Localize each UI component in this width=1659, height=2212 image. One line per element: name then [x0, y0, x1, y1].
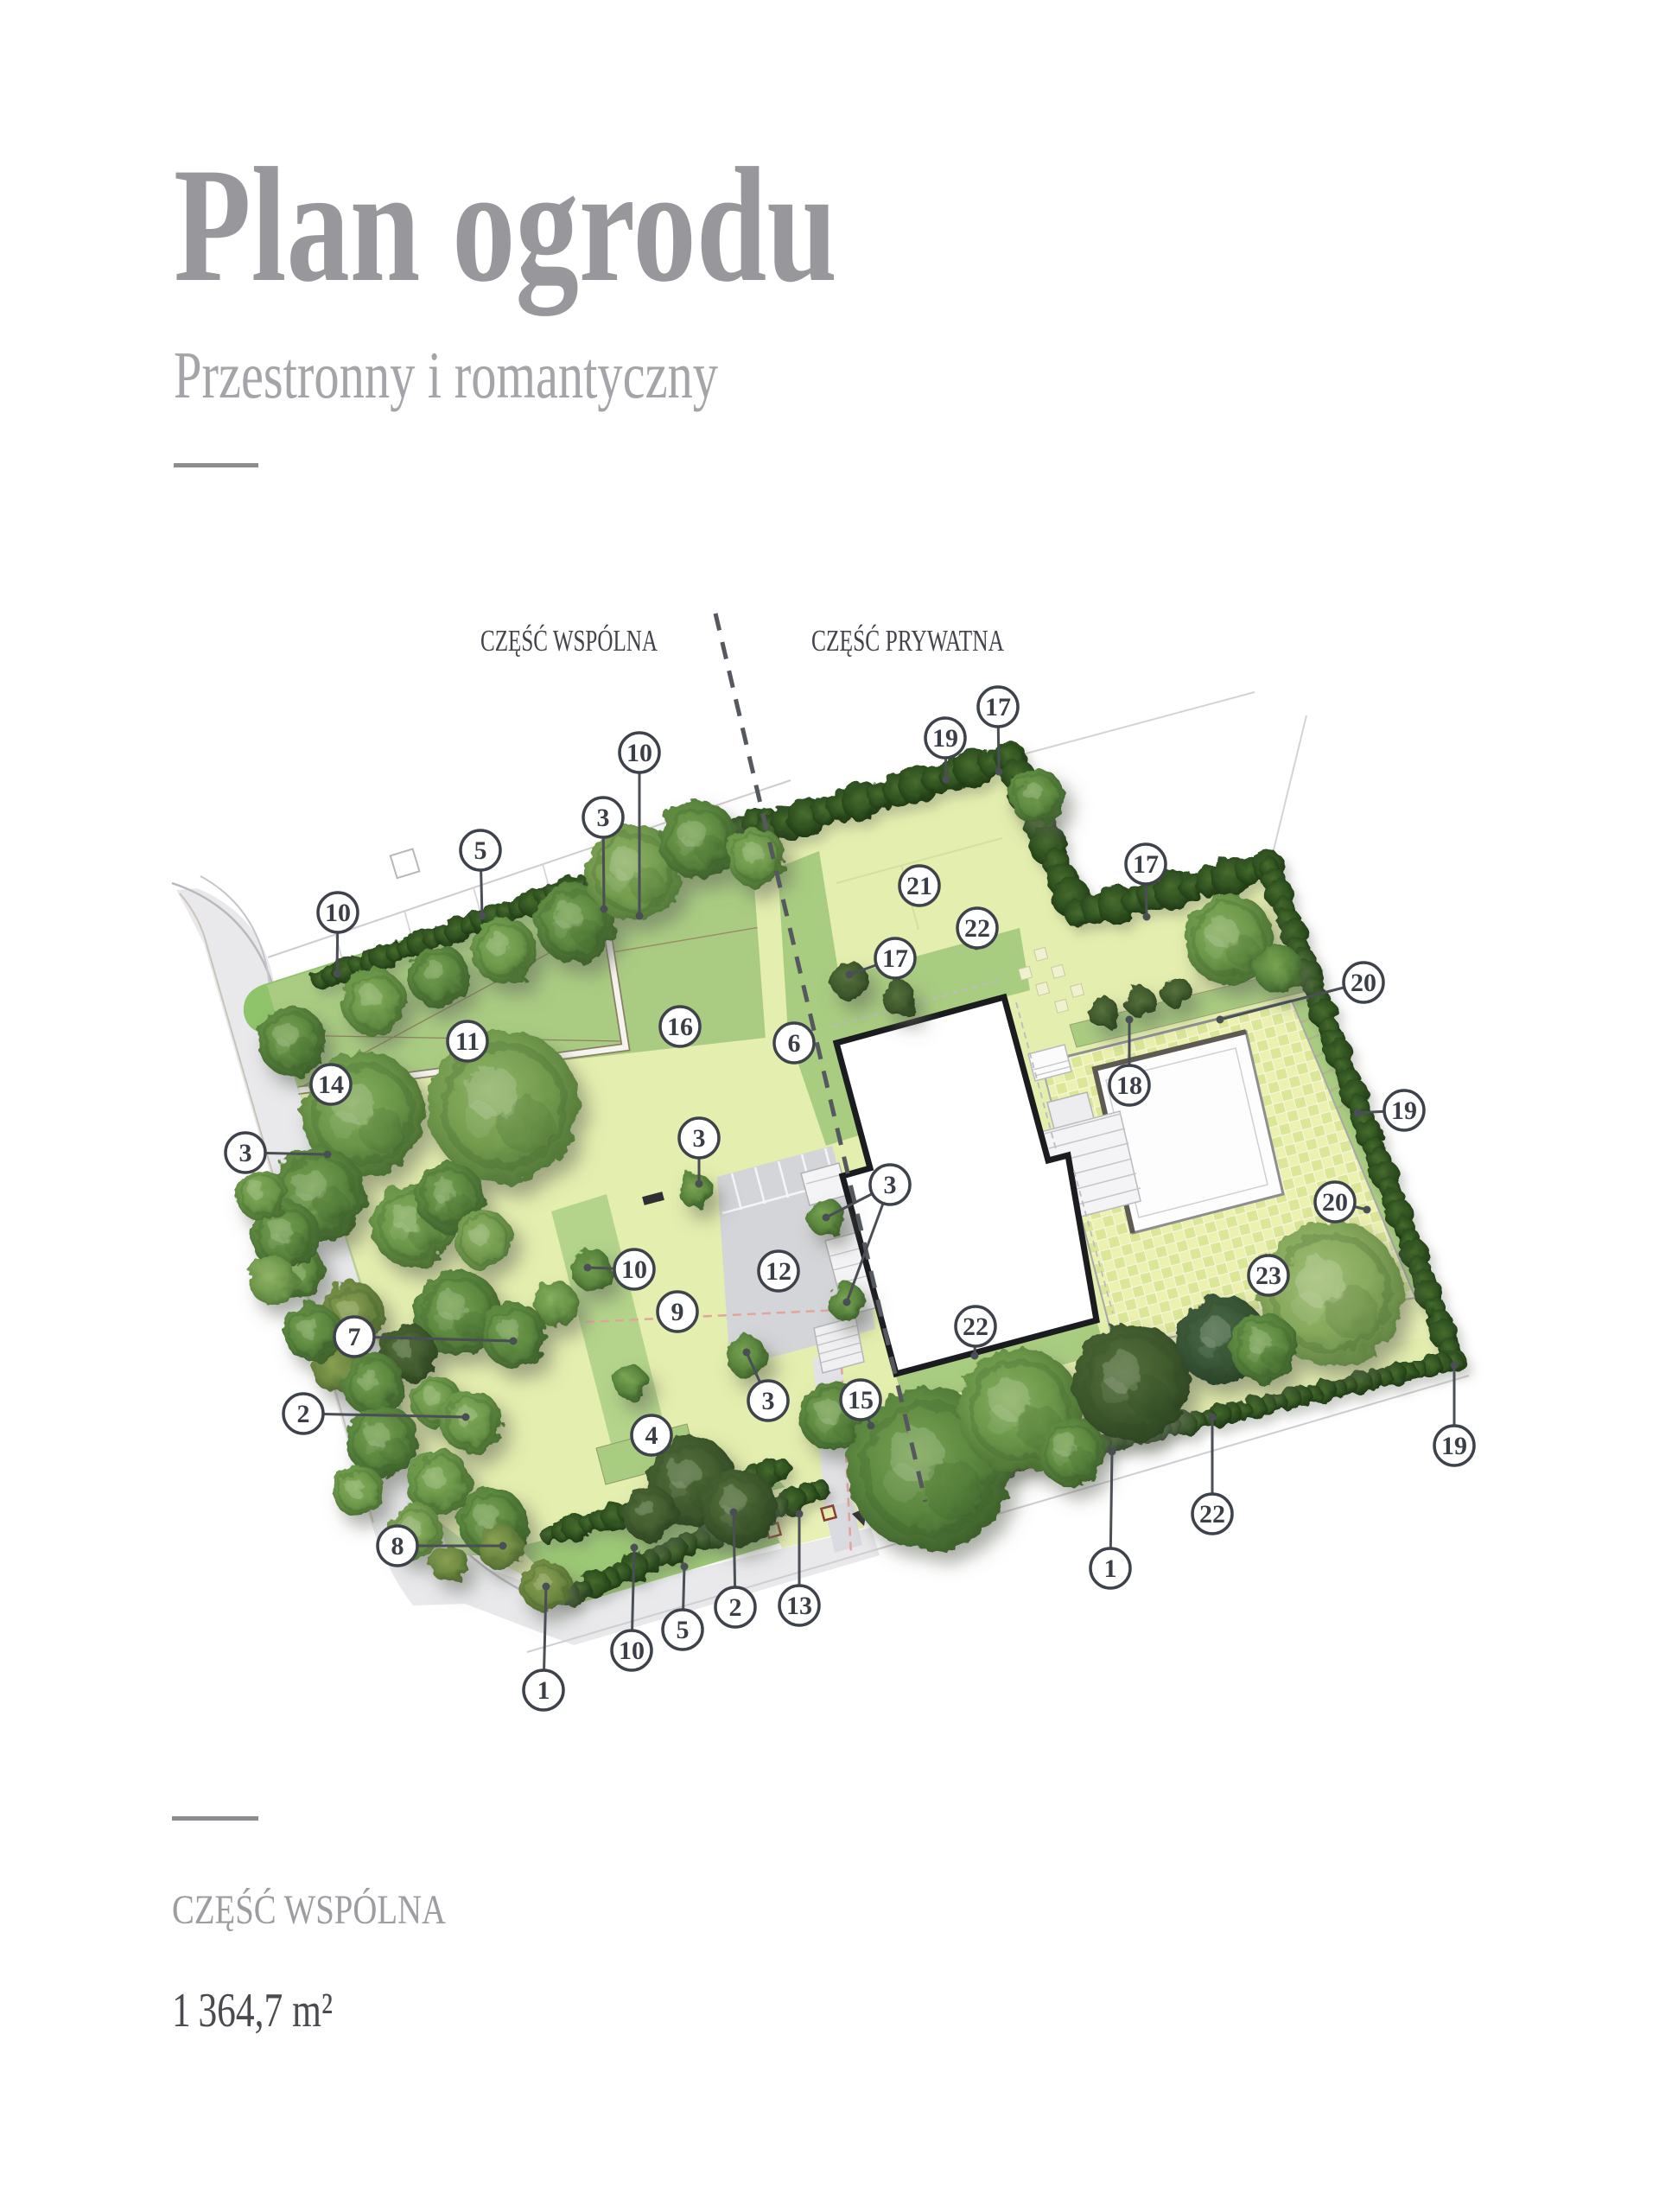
svg-text:1 364,7 m²: 1 364,7 m²	[172, 1984, 333, 2037]
svg-text:18: 18	[1116, 1071, 1142, 1100]
svg-text:15: 15	[848, 1386, 874, 1414]
svg-text:20: 20	[1351, 969, 1376, 997]
svg-text:10: 10	[325, 899, 351, 927]
svg-text:14: 14	[318, 1071, 344, 1099]
svg-text:CZĘŚĆ WSPÓLNA: CZĘŚĆ WSPÓLNA	[172, 1886, 446, 1933]
svg-text:3: 3	[762, 1387, 775, 1415]
svg-text:3: 3	[597, 804, 610, 832]
svg-text:1: 1	[537, 1676, 550, 1705]
svg-text:22: 22	[963, 1313, 988, 1341]
svg-text:19: 19	[1391, 1096, 1417, 1125]
svg-text:21: 21	[906, 872, 932, 900]
svg-text:6: 6	[788, 1029, 801, 1058]
svg-text:2: 2	[297, 1400, 310, 1428]
svg-text:13: 13	[786, 1592, 812, 1620]
svg-text:1: 1	[1104, 1554, 1117, 1583]
svg-text:10: 10	[621, 1255, 647, 1284]
svg-text:16: 16	[667, 1013, 693, 1041]
svg-text:5: 5	[677, 1616, 690, 1644]
svg-text:4: 4	[645, 1421, 658, 1450]
svg-text:CZĘŚĆ PRYWATNA: CZĘŚĆ PRYWATNA	[811, 623, 1005, 658]
svg-text:17: 17	[882, 944, 908, 973]
svg-text:20: 20	[1322, 1188, 1348, 1217]
svg-text:22: 22	[964, 914, 990, 943]
svg-text:Przestronny i romantyczny: Przestronny i romantyczny	[174, 338, 718, 412]
svg-text:10: 10	[626, 739, 652, 767]
svg-text:19: 19	[932, 724, 958, 753]
svg-text:3: 3	[693, 1124, 706, 1153]
svg-text:10: 10	[619, 1637, 645, 1665]
svg-text:19: 19	[1441, 1432, 1467, 1460]
svg-text:22: 22	[1199, 1500, 1225, 1529]
svg-text:23: 23	[1255, 1262, 1281, 1290]
svg-text:8: 8	[391, 1532, 404, 1560]
svg-text:12: 12	[766, 1257, 791, 1286]
svg-text:7: 7	[348, 1323, 361, 1351]
svg-text:17: 17	[985, 693, 1011, 721]
svg-text:3: 3	[239, 1139, 252, 1167]
svg-text:CZĘŚĆ WSPÓLNA: CZĘŚĆ WSPÓLNA	[480, 623, 658, 658]
svg-text:9: 9	[671, 1298, 684, 1326]
svg-text:3: 3	[884, 1171, 897, 1199]
svg-text:Plan ogrodu: Plan ogrodu	[174, 135, 837, 316]
svg-text:11: 11	[455, 1027, 480, 1056]
svg-text:5: 5	[474, 836, 487, 865]
svg-text:2: 2	[729, 1593, 742, 1622]
svg-text:17: 17	[1133, 850, 1159, 879]
